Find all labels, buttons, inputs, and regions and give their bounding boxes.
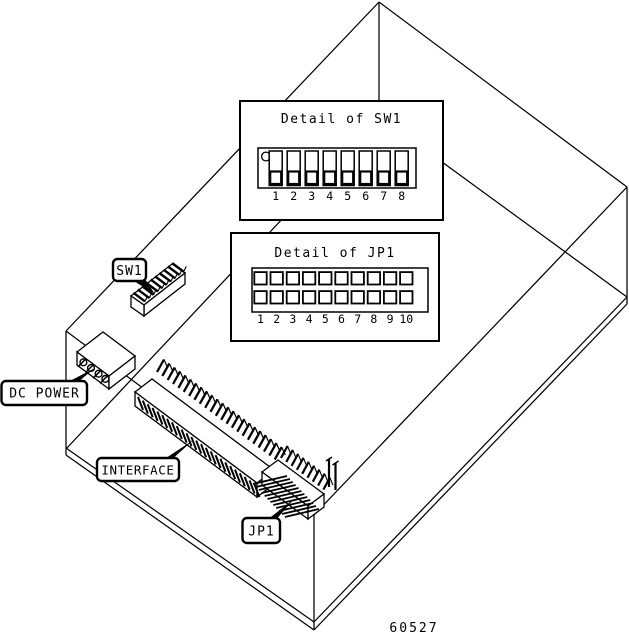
jp1-position-number: 5: [322, 312, 329, 326]
dc-power-label: DC POWER: [9, 387, 80, 402]
jp1-position-number: 8: [370, 312, 377, 326]
sw1-detail-actuator: [360, 172, 371, 185]
interface-back-pin: [162, 363, 169, 376]
bottom-edge-se-outer: [314, 304, 627, 630]
jp1-position-number: 10: [399, 312, 413, 326]
sw1-callout: SW1: [113, 259, 155, 294]
sw1-position-number: 5: [344, 189, 351, 203]
sw1-position-number: 4: [326, 189, 333, 203]
jp1-detail-inset: Detail of JP1 12345678910: [231, 233, 439, 341]
jp1-detail-pin: [319, 272, 331, 284]
jp1-position-number: 4: [306, 312, 313, 326]
sw1-detail-actuator: [270, 172, 281, 185]
jp1-detail-pin: [335, 272, 347, 284]
jp1-back-pin: [325, 474, 328, 482]
interface-back-pin: [184, 379, 191, 392]
jp1-detail-pin: [384, 272, 396, 284]
interface-back-pin: [205, 395, 212, 408]
jp1-back-pin: [288, 446, 291, 454]
interface-back-pin: [227, 411, 234, 424]
bottom-edge-se-inner: [314, 297, 627, 622]
jp1-detail-pin: [400, 291, 412, 303]
sw1-position-number: 6: [362, 189, 369, 203]
interface-back-pin: [264, 439, 271, 452]
jp1-callout: JP1: [243, 499, 295, 543]
sw1-position-number: 8: [398, 189, 405, 203]
interface-back-pin: [232, 415, 239, 428]
jp1-back-pin: [303, 458, 306, 466]
interface-back-pin: [189, 383, 196, 396]
sw1-detail-actuator: [306, 172, 317, 185]
jp1-detail-pin: [303, 291, 315, 303]
sw1-detail-actuator: [378, 172, 389, 185]
jp1-back-pin: [330, 478, 333, 486]
sw1-position-number: 2: [290, 189, 297, 203]
interface-back-pin: [216, 403, 223, 416]
jp1-position-number: 6: [338, 312, 345, 326]
jp1-back-pin: [298, 454, 301, 462]
jp1-back-pin: [314, 466, 317, 474]
jp1-detail-pin: [271, 291, 283, 303]
jp1-position-number: 7: [354, 312, 361, 326]
interface-back-pin: [178, 375, 185, 388]
figure-canvas: Detail of SW1 12345678 Detail of JP1 123…: [0, 0, 629, 640]
jp1-detail-pin: [287, 272, 299, 284]
interface-back-pin: [248, 427, 255, 440]
dc-power-connector-component: [77, 332, 135, 389]
jp1-detail-pin: [271, 272, 283, 284]
sw1-position-number: 1: [272, 189, 279, 203]
interface-back-pin: [253, 431, 260, 444]
sw1-position-number: 7: [380, 189, 387, 203]
sw1-detail-actuator: [342, 172, 353, 185]
interface-callout: INTERFACE: [97, 440, 194, 482]
interface-back-pin: [173, 371, 180, 384]
interface-back-pin: [243, 423, 250, 436]
sw1-detail-title: Detail of SW1: [281, 112, 402, 127]
jp1-detail-pin: [400, 272, 412, 284]
interface-back-pin: [269, 443, 276, 456]
jp1-detail-pin: [287, 291, 299, 303]
jp1-detail-pin: [368, 291, 380, 303]
jp1-position-number: 9: [387, 312, 394, 326]
jp1-detail-pin: [254, 272, 266, 284]
jp1-back-pin: [309, 462, 312, 470]
interface-back-pin: [157, 360, 164, 373]
sw1-detail-actuator: [396, 172, 407, 185]
jp1-detail-pin: [368, 272, 380, 284]
sw1-position-number: 3: [308, 189, 315, 203]
jp1-detail-pin: [254, 291, 266, 303]
interface-back-pin: [237, 419, 244, 432]
jp1-detail-pin-block: 12345678910: [252, 268, 428, 326]
interface-back-pin: [168, 367, 175, 380]
interface-back-pin: [200, 391, 207, 404]
jp1-header-component: [253, 446, 339, 519]
figure-number: 60527: [389, 621, 438, 636]
jp1-detail-pin: [384, 291, 396, 303]
interface-back-pin: [194, 387, 201, 400]
jp1-detail-title: Detail of JP1: [274, 246, 395, 261]
jp1-detail-pin: [319, 291, 331, 303]
interface-label: INTERFACE: [101, 463, 174, 478]
jp1-detail-pin: [335, 291, 347, 303]
sw1-label: SW1: [116, 264, 142, 279]
jp1-back-pin: [293, 450, 296, 458]
jp1-label: JP1: [248, 525, 274, 540]
interface-back-pin: [211, 399, 218, 412]
sw1-detail-actuator: [324, 172, 335, 185]
interface-back-pin: [259, 435, 266, 448]
interface-back-pin: [221, 407, 228, 420]
jp1-position-number: 1: [257, 312, 264, 326]
jp1-detail-pin: [352, 291, 364, 303]
jp1-position-number: 2: [273, 312, 280, 326]
jp1-position-number: 3: [289, 312, 296, 326]
sw1-detail-inset: Detail of SW1 12345678: [240, 101, 443, 220]
jp1-detail-pin: [303, 272, 315, 284]
sw1-actuator-hatch: [184, 266, 187, 271]
board-diagram: Detail of SW1 12345678 Detail of JP1 123…: [0, 0, 629, 640]
jp1-detail-pin: [352, 272, 364, 284]
jp1-back-pin: [319, 470, 322, 478]
sw1-detail-actuator: [288, 172, 299, 185]
dc-power-callout: DC POWER: [2, 368, 96, 405]
